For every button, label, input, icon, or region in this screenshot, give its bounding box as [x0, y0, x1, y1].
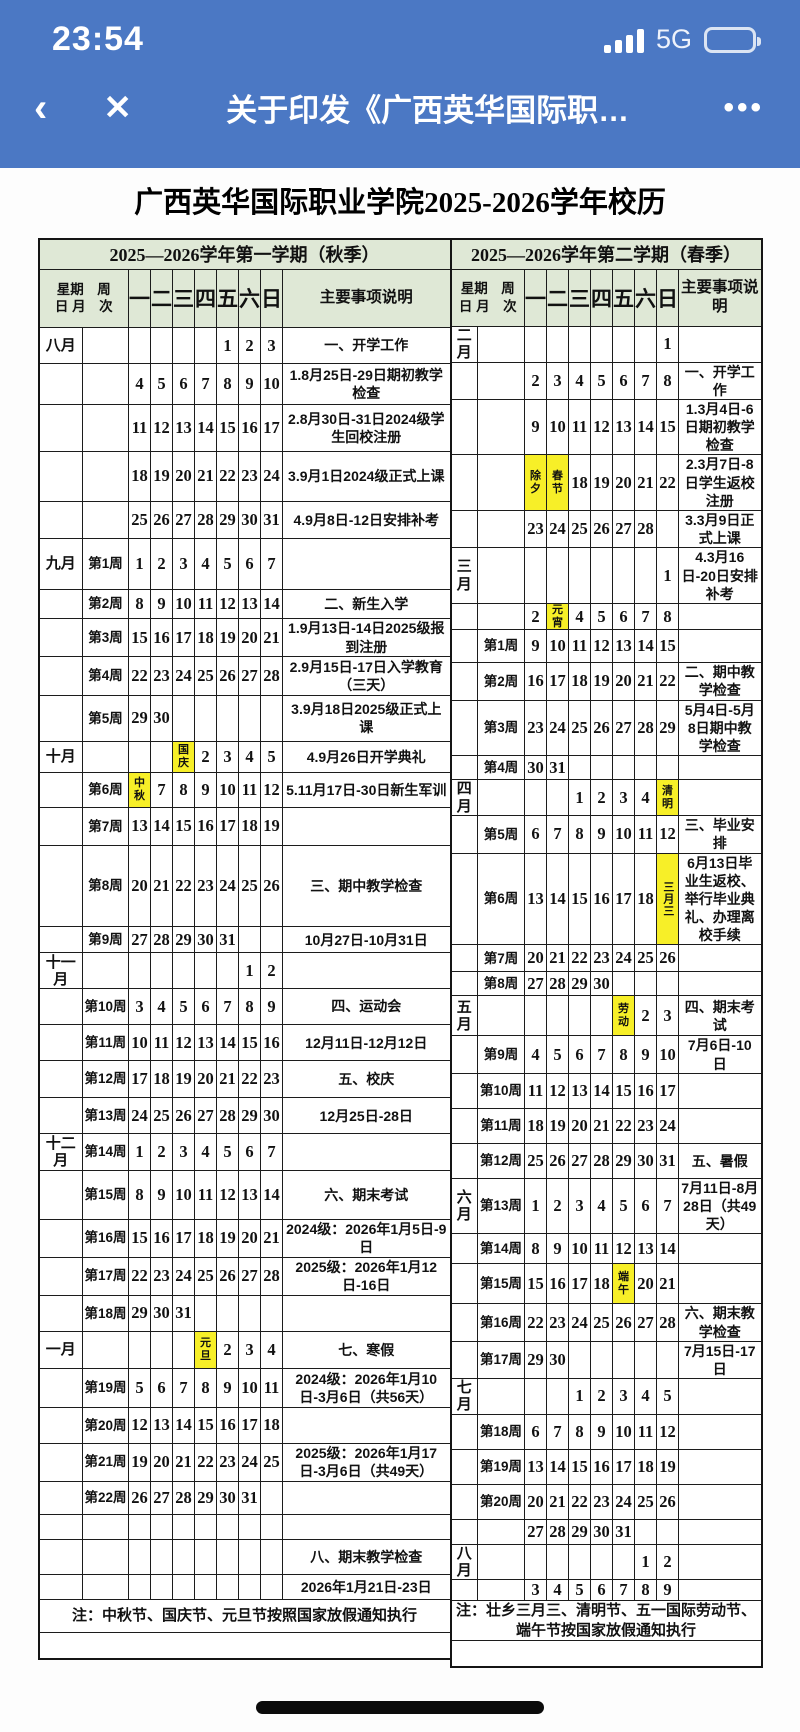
battery-icon — [704, 27, 756, 53]
day-cell: 16 — [525, 663, 547, 700]
day-cell — [591, 326, 613, 362]
note-cell — [679, 1414, 762, 1449]
day-cell: 22 — [129, 1257, 151, 1295]
day-cell: 4 — [569, 603, 591, 629]
day-cell: 15 — [525, 1264, 547, 1304]
day-cell: 27 — [151, 1481, 173, 1514]
day-cell: 30 — [151, 695, 173, 742]
day-cell — [657, 511, 679, 548]
day-cell: 27 — [525, 972, 547, 996]
day-cell: 2 — [261, 953, 283, 989]
day-cell — [151, 1515, 173, 1540]
day-cell: 9 — [261, 989, 283, 1025]
note-cell — [679, 1449, 762, 1484]
day-cell: 6 — [569, 1036, 591, 1073]
day-cell — [195, 1574, 217, 1599]
day-cell: 20 — [525, 1484, 547, 1519]
month-cell — [451, 1036, 478, 1073]
note-cell: 四、期末考试 — [679, 996, 762, 1036]
day-cell: 26 — [151, 502, 173, 539]
week-number-cell — [83, 1574, 129, 1599]
day-cell: 8 — [217, 364, 239, 405]
note-cell: 二、新生入学 — [283, 589, 451, 618]
day-cell: 29 — [239, 1097, 261, 1134]
week-number-cell: 第15周 — [478, 1264, 525, 1304]
day-cell: 21 — [547, 945, 569, 972]
day-cell: 6 — [151, 1368, 173, 1408]
day-cell: 2 — [525, 603, 547, 629]
day-cell: 27 — [635, 1304, 657, 1341]
note-cell — [679, 1580, 762, 1601]
day-cell: 28 — [635, 511, 657, 548]
day-cell — [525, 1544, 547, 1580]
month-cell — [451, 1341, 478, 1378]
day-cell — [239, 1574, 261, 1599]
note-cell: 5月4日-5月8日期中教学检查 — [679, 700, 762, 756]
day-cell — [635, 548, 657, 604]
day-cell: 23 — [239, 451, 261, 502]
day-cell: 21 — [657, 1264, 679, 1304]
holiday-footnote: 注：中秋节、国庆节、元旦节按照国家放假通知执行 — [39, 1600, 451, 1632]
day-cell: 6 — [173, 364, 195, 405]
day-cell: 24 — [261, 451, 283, 502]
month-cell — [39, 1515, 83, 1540]
day-of-week-header: 一 — [129, 269, 151, 327]
day-cell: 16 — [635, 1073, 657, 1108]
month-cell — [39, 1061, 83, 1098]
day-cell — [591, 1341, 613, 1378]
day-cell: 10 — [569, 1234, 591, 1264]
month-cell — [451, 1264, 478, 1304]
day-cell — [195, 327, 217, 364]
week-number-cell: 第20周 — [478, 1484, 525, 1519]
day-cell: 11 — [569, 399, 591, 455]
day-cell: 5 — [217, 538, 239, 589]
day-cell: 22 — [173, 845, 195, 926]
month-cell — [39, 1408, 83, 1444]
month-cell — [451, 945, 478, 972]
day-cell: 14 — [195, 404, 217, 451]
note-cell: 六、期末教学检查 — [679, 1304, 762, 1341]
month-cell — [451, 1234, 478, 1264]
document-nav-title: 关于印发《广西英华国际职… — [150, 85, 706, 130]
day-cell: 6 — [591, 1580, 613, 1601]
day-cell: 1 — [239, 953, 261, 989]
day-cell: 7 — [613, 1580, 635, 1601]
month-cell: 十一月 — [39, 953, 83, 989]
day-cell: 16 — [151, 1219, 173, 1257]
month-cell — [39, 1170, 83, 1219]
day-cell: 29 — [195, 1481, 217, 1514]
week-number-cell: 第5周 — [83, 695, 129, 742]
day-cell: 4 — [129, 364, 151, 405]
day-cell — [569, 326, 591, 362]
month-cell — [39, 1097, 83, 1134]
day-cell: 7 — [635, 362, 657, 399]
day-cell: 4 — [195, 538, 217, 589]
day-cell: 13 — [195, 1024, 217, 1061]
day-cell: 1 — [569, 780, 591, 816]
day-cell: 24 — [173, 656, 195, 695]
day-cell: 4 — [151, 989, 173, 1025]
day-cell: 23 — [591, 1484, 613, 1519]
day-cell — [239, 1515, 261, 1540]
back-icon[interactable]: ‹ — [34, 88, 47, 128]
week-number-cell: 第5周 — [478, 816, 525, 853]
day-cell — [657, 756, 679, 780]
day-cell: 29 — [129, 1295, 151, 1332]
day-cell: 16 — [591, 853, 613, 945]
day-cell: 22 — [657, 455, 679, 511]
week-number-cell — [478, 1544, 525, 1580]
day-cell: 12 — [657, 1414, 679, 1449]
day-cell: 6 — [613, 603, 635, 629]
day-cell: 5 — [613, 1178, 635, 1234]
month-cell — [39, 589, 83, 618]
day-of-week-header: 一 — [525, 269, 547, 326]
day-cell: 7 — [173, 1368, 195, 1408]
day-cell: 25 — [569, 511, 591, 548]
day-cell: 11 — [591, 1234, 613, 1264]
week-number-cell: 第12周 — [83, 1061, 129, 1098]
day-cell: 26 — [657, 1484, 679, 1519]
day-cell: 17 — [173, 619, 195, 657]
day-cell: 14 — [547, 853, 569, 945]
day-cell: 25 — [239, 845, 261, 926]
day-cell — [195, 1295, 217, 1332]
day-cell: 14 — [657, 1234, 679, 1264]
note-cell — [283, 538, 451, 589]
note-cell: 12月11日-12月12日 — [283, 1024, 451, 1061]
month-cell — [451, 399, 478, 455]
day-cell: 6 — [239, 1134, 261, 1171]
day-cell: 11 — [195, 589, 217, 618]
week-number-cell: 第15周 — [83, 1170, 129, 1219]
day-cell: 17 — [239, 1408, 261, 1444]
month-cell — [451, 700, 478, 756]
day-cell: 5 — [569, 1580, 591, 1601]
day-cell: 29 — [569, 972, 591, 996]
month-cell — [451, 1108, 478, 1143]
day-cell: 18 — [129, 451, 151, 502]
day-cell — [591, 756, 613, 780]
day-cell: 3 — [173, 538, 195, 589]
day-cell — [129, 953, 151, 989]
holiday-cell: 端午 — [613, 1264, 635, 1304]
day-cell: 9 — [547, 1234, 569, 1264]
day-cell — [129, 742, 151, 772]
day-cell — [129, 327, 151, 364]
note-cell: 四、运动会 — [283, 989, 451, 1025]
day-cell: 3 — [525, 1580, 547, 1601]
day-cell: 12 — [173, 1024, 195, 1061]
day-cell: 31 — [261, 502, 283, 539]
day-cell: 30 — [239, 502, 261, 539]
day-cell: 17 — [547, 663, 569, 700]
note-cell: 10月27日-10月31日 — [283, 926, 451, 952]
note-cell — [283, 953, 451, 989]
week-number-cell: 第14周 — [83, 1134, 129, 1171]
day-cell: 24 — [547, 700, 569, 756]
day-cell — [547, 1379, 569, 1415]
day-cell: 1 — [657, 548, 679, 604]
day-cell: 28 — [195, 502, 217, 539]
day-cell: 28 — [547, 972, 569, 996]
month-cell — [451, 455, 478, 511]
day-cell: 30 — [261, 1097, 283, 1134]
day-cell: 10 — [613, 816, 635, 853]
week-number-cell — [83, 1332, 129, 1369]
week-number-cell: 第18周 — [478, 1414, 525, 1449]
week-number-cell — [83, 364, 129, 405]
note-cell: 5.11月17日-30日新生军训 — [283, 772, 451, 808]
day-cell: 4 — [635, 780, 657, 816]
day-cell: 21 — [547, 1484, 569, 1519]
day-cell: 26 — [613, 1304, 635, 1341]
note-cell: 一、开学工作 — [283, 327, 451, 364]
month-cell — [39, 772, 83, 808]
day-cell: 15 — [195, 1408, 217, 1444]
day-cell: 24 — [547, 511, 569, 548]
day-cell: 4 — [525, 1036, 547, 1073]
day-cell — [547, 780, 569, 816]
day-cell: 12 — [129, 1408, 151, 1444]
note-cell — [679, 1544, 762, 1580]
week-number-cell: 第4周 — [83, 656, 129, 695]
day-cell: 31 — [657, 1143, 679, 1178]
day-cell: 29 — [613, 1143, 635, 1178]
note-cell — [679, 1264, 762, 1304]
day-cell: 20 — [239, 1219, 261, 1257]
month-cell — [39, 364, 83, 405]
day-cell: 11 — [635, 816, 657, 853]
month-cell: 一月 — [39, 1332, 83, 1369]
clock: 23:54 — [52, 20, 144, 59]
day-cell: 9 — [525, 630, 547, 663]
day-cell: 24 — [569, 1304, 591, 1341]
month-cell — [39, 656, 83, 695]
day-cell — [591, 548, 613, 604]
day-cell: 30 — [591, 972, 613, 996]
month-cell — [39, 1574, 83, 1599]
note-cell: 2.9月15日-17日入学教育（三天） — [283, 656, 451, 695]
nav-bar: ‹ ✕ 关于印发《广西英华国际职… ••• — [0, 59, 800, 130]
day-cell: 15 — [569, 1449, 591, 1484]
day-cell: 2 — [547, 1178, 569, 1234]
holiday-cell: 元宵 — [547, 603, 569, 629]
week-number-cell: 第20周 — [83, 1408, 129, 1444]
week-number-cell — [83, 404, 129, 451]
day-cell — [261, 695, 283, 742]
week-number-cell: 第11周 — [478, 1108, 525, 1143]
week-number-cell: 第7周 — [83, 808, 129, 846]
day-cell: 29 — [217, 502, 239, 539]
day-cell: 8 — [129, 589, 151, 618]
day-cell: 2 — [151, 1134, 173, 1171]
day-cell: 28 — [591, 1143, 613, 1178]
week-number-cell: 第7周 — [478, 945, 525, 972]
day-cell: 12 — [591, 630, 613, 663]
day-cell — [261, 926, 283, 952]
day-cell: 28 — [635, 700, 657, 756]
week-number-cell — [478, 548, 525, 604]
day-cell: 7 — [195, 364, 217, 405]
day-cell: 17 — [613, 853, 635, 945]
day-cell — [151, 327, 173, 364]
note-cell: 12月25日-28日 — [283, 1097, 451, 1134]
day-cell — [195, 695, 217, 742]
day-cell: 22 — [195, 1443, 217, 1481]
month-cell — [39, 926, 83, 952]
week-number-cell: 第6周 — [83, 772, 129, 808]
day-cell: 23 — [635, 1108, 657, 1143]
day-cell: 22 — [657, 663, 679, 700]
day-cell: 9 — [657, 1580, 679, 1601]
day-cell: 4 — [591, 1178, 613, 1234]
day-cell — [657, 1341, 679, 1378]
note-cell: 五、校庆 — [283, 1061, 451, 1098]
month-cell — [451, 1449, 478, 1484]
day-cell: 24 — [239, 1443, 261, 1481]
week-number-cell: 第13周 — [478, 1178, 525, 1234]
day-cell — [195, 953, 217, 989]
day-cell: 23 — [525, 700, 547, 756]
day-cell: 13 — [239, 1170, 261, 1219]
day-cell: 7 — [217, 989, 239, 1025]
day-cell: 31 — [547, 756, 569, 780]
note-cell: 2.8月30日-31日2024级学生回校注册 — [283, 404, 451, 451]
note-cell: 2024级：2026年1月5日-9日 — [283, 1219, 451, 1257]
month-cell — [39, 404, 83, 451]
week-number-cell: 第14周 — [478, 1234, 525, 1264]
day-cell: 19 — [173, 1061, 195, 1098]
day-cell — [657, 972, 679, 996]
day-cell: 31 — [173, 1295, 195, 1332]
day-cell: 22 — [217, 451, 239, 502]
day-cell: 19 — [591, 663, 613, 700]
day-cell: 5 — [173, 989, 195, 1025]
day-cell: 10 — [547, 630, 569, 663]
day-cell: 21 — [217, 1061, 239, 1098]
month-cell — [39, 1024, 83, 1061]
month-cell — [39, 502, 83, 539]
day-cell: 2 — [591, 780, 613, 816]
week-number-cell: 第3周 — [478, 700, 525, 756]
week-number-cell — [83, 1515, 129, 1540]
day-cell — [525, 548, 547, 604]
day-cell: 18 — [635, 853, 657, 945]
day-cell — [239, 926, 261, 952]
note-cell: 2.3月7日-8日学生返校注册 — [679, 455, 762, 511]
day-cell: 9 — [151, 589, 173, 618]
day-cell: 23 — [261, 1061, 283, 1098]
day-cell: 7 — [657, 1178, 679, 1234]
note-cell: 1.3月4日-6日期初教学检查 — [679, 399, 762, 455]
day-cell — [217, 1540, 239, 1575]
day-cell: 2 — [525, 362, 547, 399]
day-cell: 3 — [613, 780, 635, 816]
day-cell: 22 — [613, 1108, 635, 1143]
month-cell — [451, 663, 478, 700]
day-cell — [173, 1515, 195, 1540]
day-cell: 15 — [217, 404, 239, 451]
note-cell: 三、毕业安排 — [679, 816, 762, 853]
day-cell: 16 — [547, 1264, 569, 1304]
home-indicator[interactable] — [256, 1701, 544, 1714]
note-cell — [283, 1515, 451, 1540]
day-cell: 18 — [569, 663, 591, 700]
day-cell: 8 — [129, 1170, 151, 1219]
day-cell: 23 — [591, 945, 613, 972]
day-cell: 8 — [195, 1368, 217, 1408]
day-cell: 19 — [547, 1108, 569, 1143]
day-cell: 14 — [173, 1408, 195, 1444]
holiday-cell: 劳动 — [613, 996, 635, 1036]
day-cell — [569, 1341, 591, 1378]
semester-title: 2025—2026学年第一学期（秋季） — [39, 239, 451, 269]
day-cell: 29 — [569, 1519, 591, 1544]
note-cell — [679, 1519, 762, 1544]
day-cell: 4 — [547, 1580, 569, 1601]
day-cell: 13 — [569, 1073, 591, 1108]
month-cell: 十月 — [39, 742, 83, 772]
day-cell: 18 — [591, 1264, 613, 1304]
day-cell: 10 — [217, 772, 239, 808]
close-icon[interactable]: ✕ — [103, 88, 132, 128]
day-cell: 30 — [195, 926, 217, 952]
note-cell — [679, 1108, 762, 1143]
day-cell: 17 — [129, 1061, 151, 1098]
day-cell: 10 — [613, 1414, 635, 1449]
note-cell — [283, 1481, 451, 1514]
day-cell: 15 — [569, 853, 591, 945]
day-cell: 25 — [525, 1143, 547, 1178]
week-number-cell — [83, 327, 129, 364]
month-cell — [451, 511, 478, 548]
note-cell: 7月15日-17日 — [679, 1341, 762, 1378]
month-cell — [39, 1257, 83, 1295]
holiday-cell: 除夕 — [525, 455, 547, 511]
day-cell — [547, 1544, 569, 1580]
signal-icon — [604, 27, 644, 53]
day-of-week-header: 四 — [591, 269, 613, 326]
week-number-cell — [478, 455, 525, 511]
week-number-cell — [83, 502, 129, 539]
day-cell — [129, 1515, 151, 1540]
day-cell — [635, 972, 657, 996]
day-cell: 30 — [591, 1519, 613, 1544]
day-cell: 18 — [151, 1061, 173, 1098]
day-cell: 7 — [547, 1414, 569, 1449]
day-cell: 3 — [217, 742, 239, 772]
day-cell: 1 — [217, 327, 239, 364]
day-cell: 11 — [569, 630, 591, 663]
day-cell: 26 — [547, 1143, 569, 1178]
week-number-cell — [478, 1519, 525, 1544]
day-cell: 29 — [173, 926, 195, 952]
day-cell: 10 — [173, 589, 195, 618]
note-cell: 3.9月1日2024级正式上课 — [283, 451, 451, 502]
status-bar: 23:54 5G — [0, 0, 800, 59]
day-cell: 10 — [261, 364, 283, 405]
more-menu-icon[interactable]: ••• — [723, 91, 764, 125]
day-cell — [547, 326, 569, 362]
day-cell: 20 — [613, 455, 635, 511]
day-cell: 5 — [261, 742, 283, 772]
note-cell: 五、暑假 — [679, 1143, 762, 1178]
fall-semester-table: 2025—2026学年第一学期（秋季）星期 周日 月 次一二三四五六日主要事项说… — [38, 238, 452, 1660]
week-number-cell: 第19周 — [83, 1368, 129, 1408]
